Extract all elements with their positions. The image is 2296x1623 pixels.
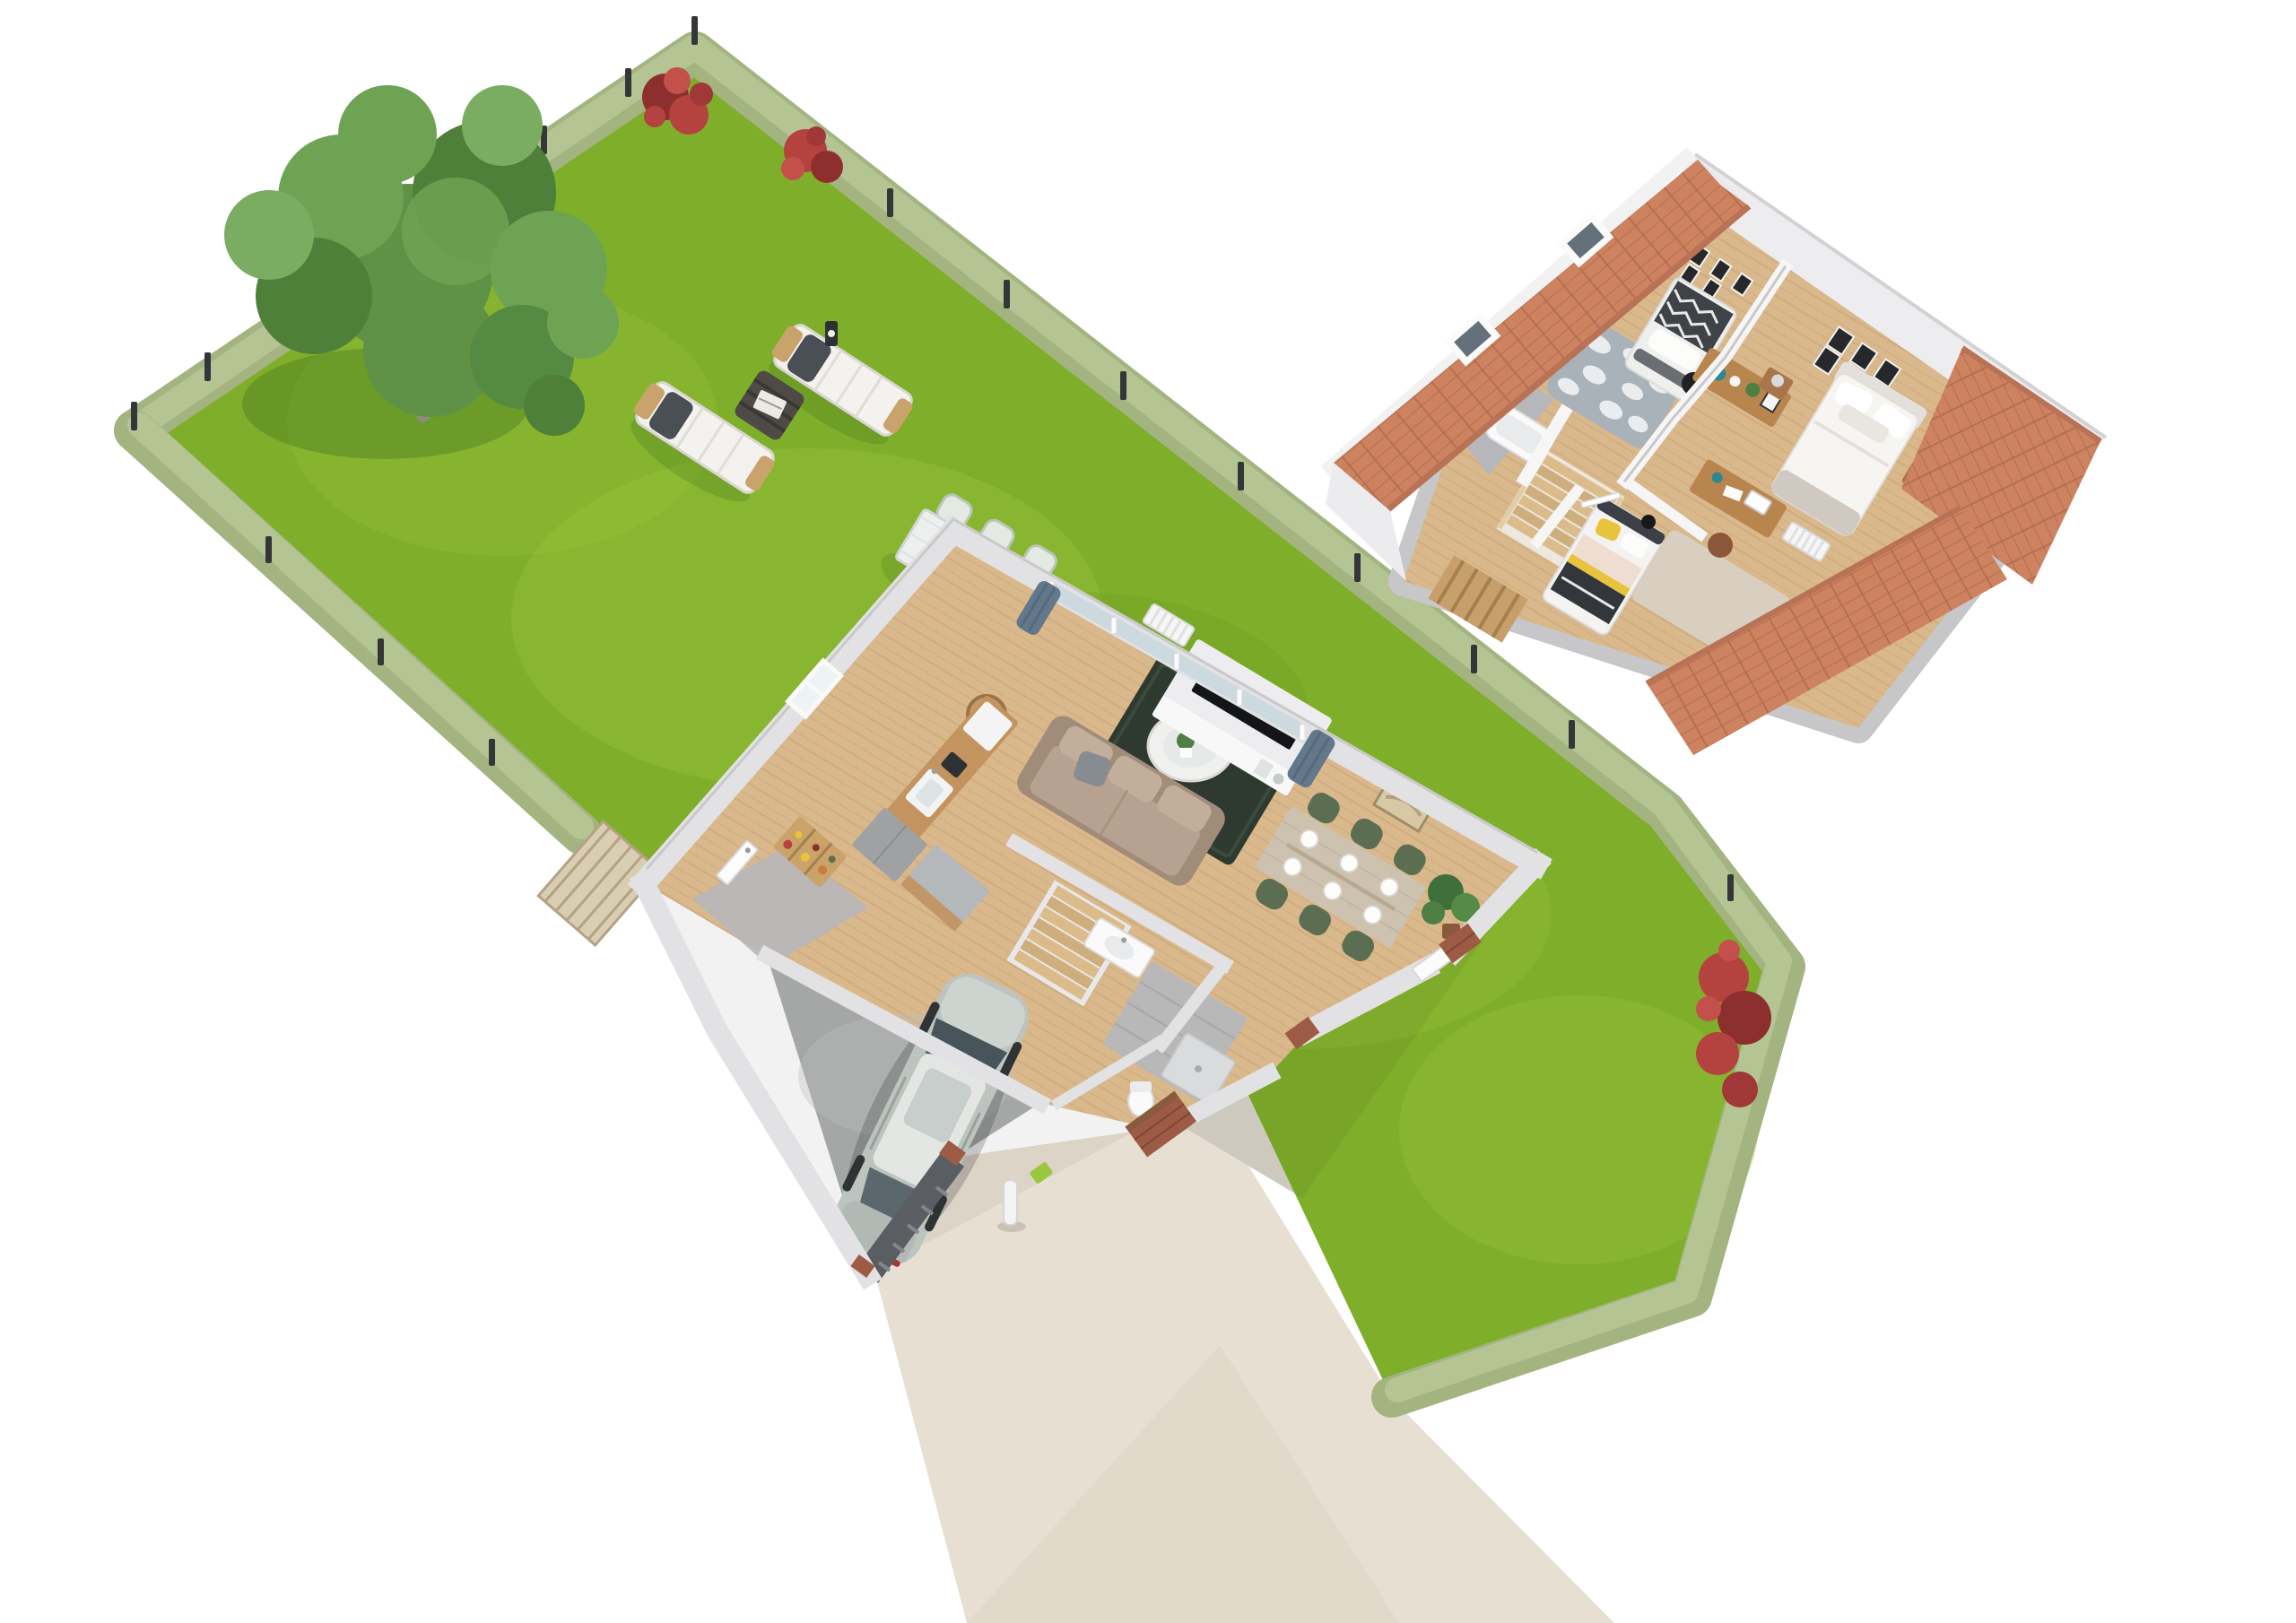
fence-post — [1569, 720, 1575, 749]
fence-post — [1471, 645, 1477, 673]
fence-post — [1238, 462, 1244, 490]
fence-post — [1354, 553, 1361, 582]
garden-lantern — [825, 321, 838, 346]
fence-post — [131, 402, 137, 430]
scene-canvas — [0, 0, 2296, 1623]
fence-post — [265, 536, 272, 563]
fence-post — [625, 68, 631, 97]
brown-chair — [1708, 533, 1733, 558]
floor-plan-render — [0, 0, 2296, 1623]
vase — [1180, 748, 1192, 758]
fence-post — [1120, 371, 1126, 400]
fence-post — [1727, 874, 1734, 901]
fence-post — [378, 638, 384, 665]
fence-post — [887, 188, 893, 217]
fence-post — [204, 352, 211, 381]
fence-post — [489, 739, 495, 766]
fence-post — [691, 16, 698, 45]
bedside-lamp — [1641, 515, 1656, 529]
fence-post — [1004, 280, 1010, 308]
